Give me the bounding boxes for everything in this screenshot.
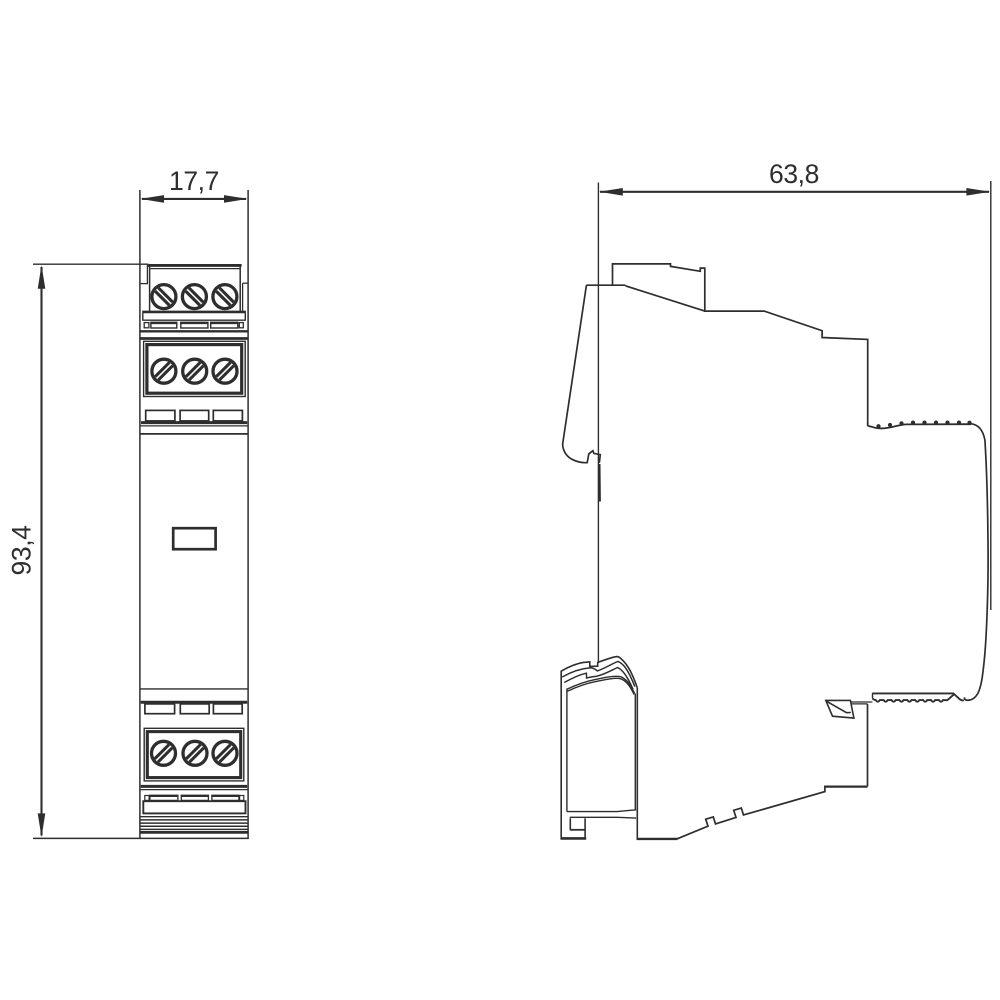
svg-text:93,4: 93,4 (7, 526, 37, 576)
svg-text:63,8: 63,8 (769, 159, 819, 189)
svg-text:17,7: 17,7 (169, 166, 219, 196)
